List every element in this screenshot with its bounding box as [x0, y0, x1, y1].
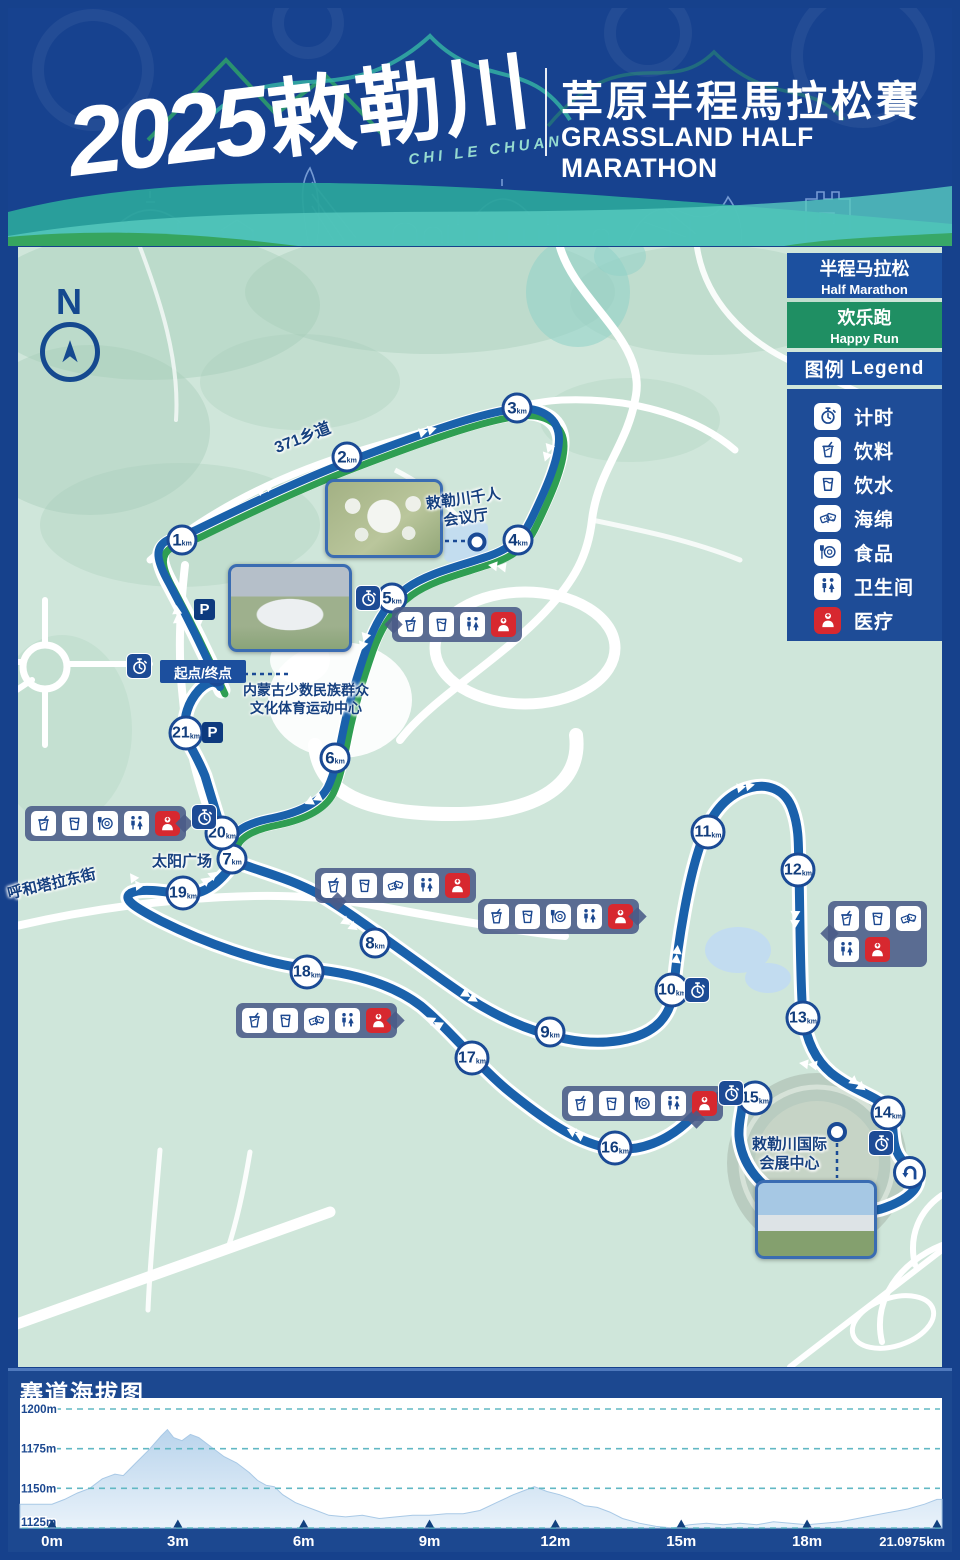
medical-icon [814, 607, 841, 634]
uturn-icon [893, 1156, 926, 1189]
legend-item-label: 计时 [854, 403, 894, 430]
event-title-cn: 草原半程馬拉松賽 [561, 68, 921, 129]
x-tick-label: 18m [792, 1533, 822, 1550]
half-marathon-zh: 半程马拉松 [787, 255, 942, 281]
logo-year: 2025 [62, 65, 270, 197]
x-tick-label: 0m [41, 1533, 63, 1550]
x-tick-label: 21.0975km [879, 1534, 945, 1549]
start-finish-label: 起点/终点 [160, 660, 246, 683]
drink-icon [814, 437, 841, 464]
x-tick-label: 12m [540, 1533, 570, 1550]
event-title-en: GRASSLAND HALF MARATHON [561, 122, 952, 184]
legend-item-label: 食品 [854, 539, 894, 566]
toilet-icon [814, 573, 841, 600]
legend-item: 饮料 [787, 433, 942, 467]
legend-panel: 计时饮料饮水海绵食品卫生间医疗 [787, 389, 942, 641]
convention-center-photo [755, 1180, 877, 1259]
legend-item-label: 海绵 [854, 505, 894, 532]
legend-item-label: 卫生间 [854, 573, 914, 600]
legend-title: 图例 Legend [787, 352, 942, 385]
x-tick-label: 9m [419, 1533, 441, 1550]
poster-header: 2025敕勒川 CHI LE CHUAN 草原半程馬拉松賽 GRASSLAND … [8, 8, 952, 246]
water-icon [814, 471, 841, 498]
legend-item: 饮水 [787, 467, 942, 501]
timer-icon [814, 403, 841, 430]
y-tick-label: 1175m [21, 1444, 56, 1456]
legend-item: 卫生间 [787, 569, 942, 603]
compass-icon [40, 322, 100, 382]
legend-item: 海绵 [787, 501, 942, 535]
legend-item: 计时 [787, 399, 942, 433]
happy-run-en: Happy Run [787, 331, 942, 346]
qianren-hall-photo [325, 479, 443, 558]
x-tick-label: 3m [167, 1533, 189, 1550]
legend-item: 医疗 [787, 603, 942, 637]
poi-node [829, 1124, 845, 1140]
legend-item: 食品 [787, 535, 942, 569]
food-icon [814, 539, 841, 566]
elevation-chart: 1200m1175m1150m1125m 0m3m6m9m12m15m18m21… [12, 1398, 948, 1552]
poi-node [470, 535, 485, 550]
half-marathon-en: Half Marathon [787, 282, 942, 297]
chart-x-labels: 0m3m6m9m12m15m18m21.0975km [41, 1533, 945, 1550]
sports-center-photo [228, 564, 352, 652]
legend-title-zh: 图例 [805, 355, 845, 382]
legend-half-marathon: 半程马拉松 Half Marathon [787, 253, 942, 298]
legend-happy-run: 欢乐跑 Happy Run [787, 302, 942, 348]
legend-item-label: 饮料 [854, 437, 894, 464]
legend-item-label: 饮水 [854, 471, 894, 498]
y-tick-label: 1150m [21, 1483, 56, 1495]
header-divider [545, 68, 547, 156]
legend-item-label: 医疗 [854, 607, 894, 634]
y-tick-label: 1200m [21, 1404, 57, 1416]
legend-title-en: Legend [851, 358, 925, 380]
x-tick-label: 6m [293, 1533, 315, 1550]
x-tick-label: 15m [666, 1533, 696, 1550]
happy-run-zh: 欢乐跑 [787, 304, 942, 330]
compass-north-label: N [56, 281, 82, 323]
sponge-icon [814, 505, 841, 532]
